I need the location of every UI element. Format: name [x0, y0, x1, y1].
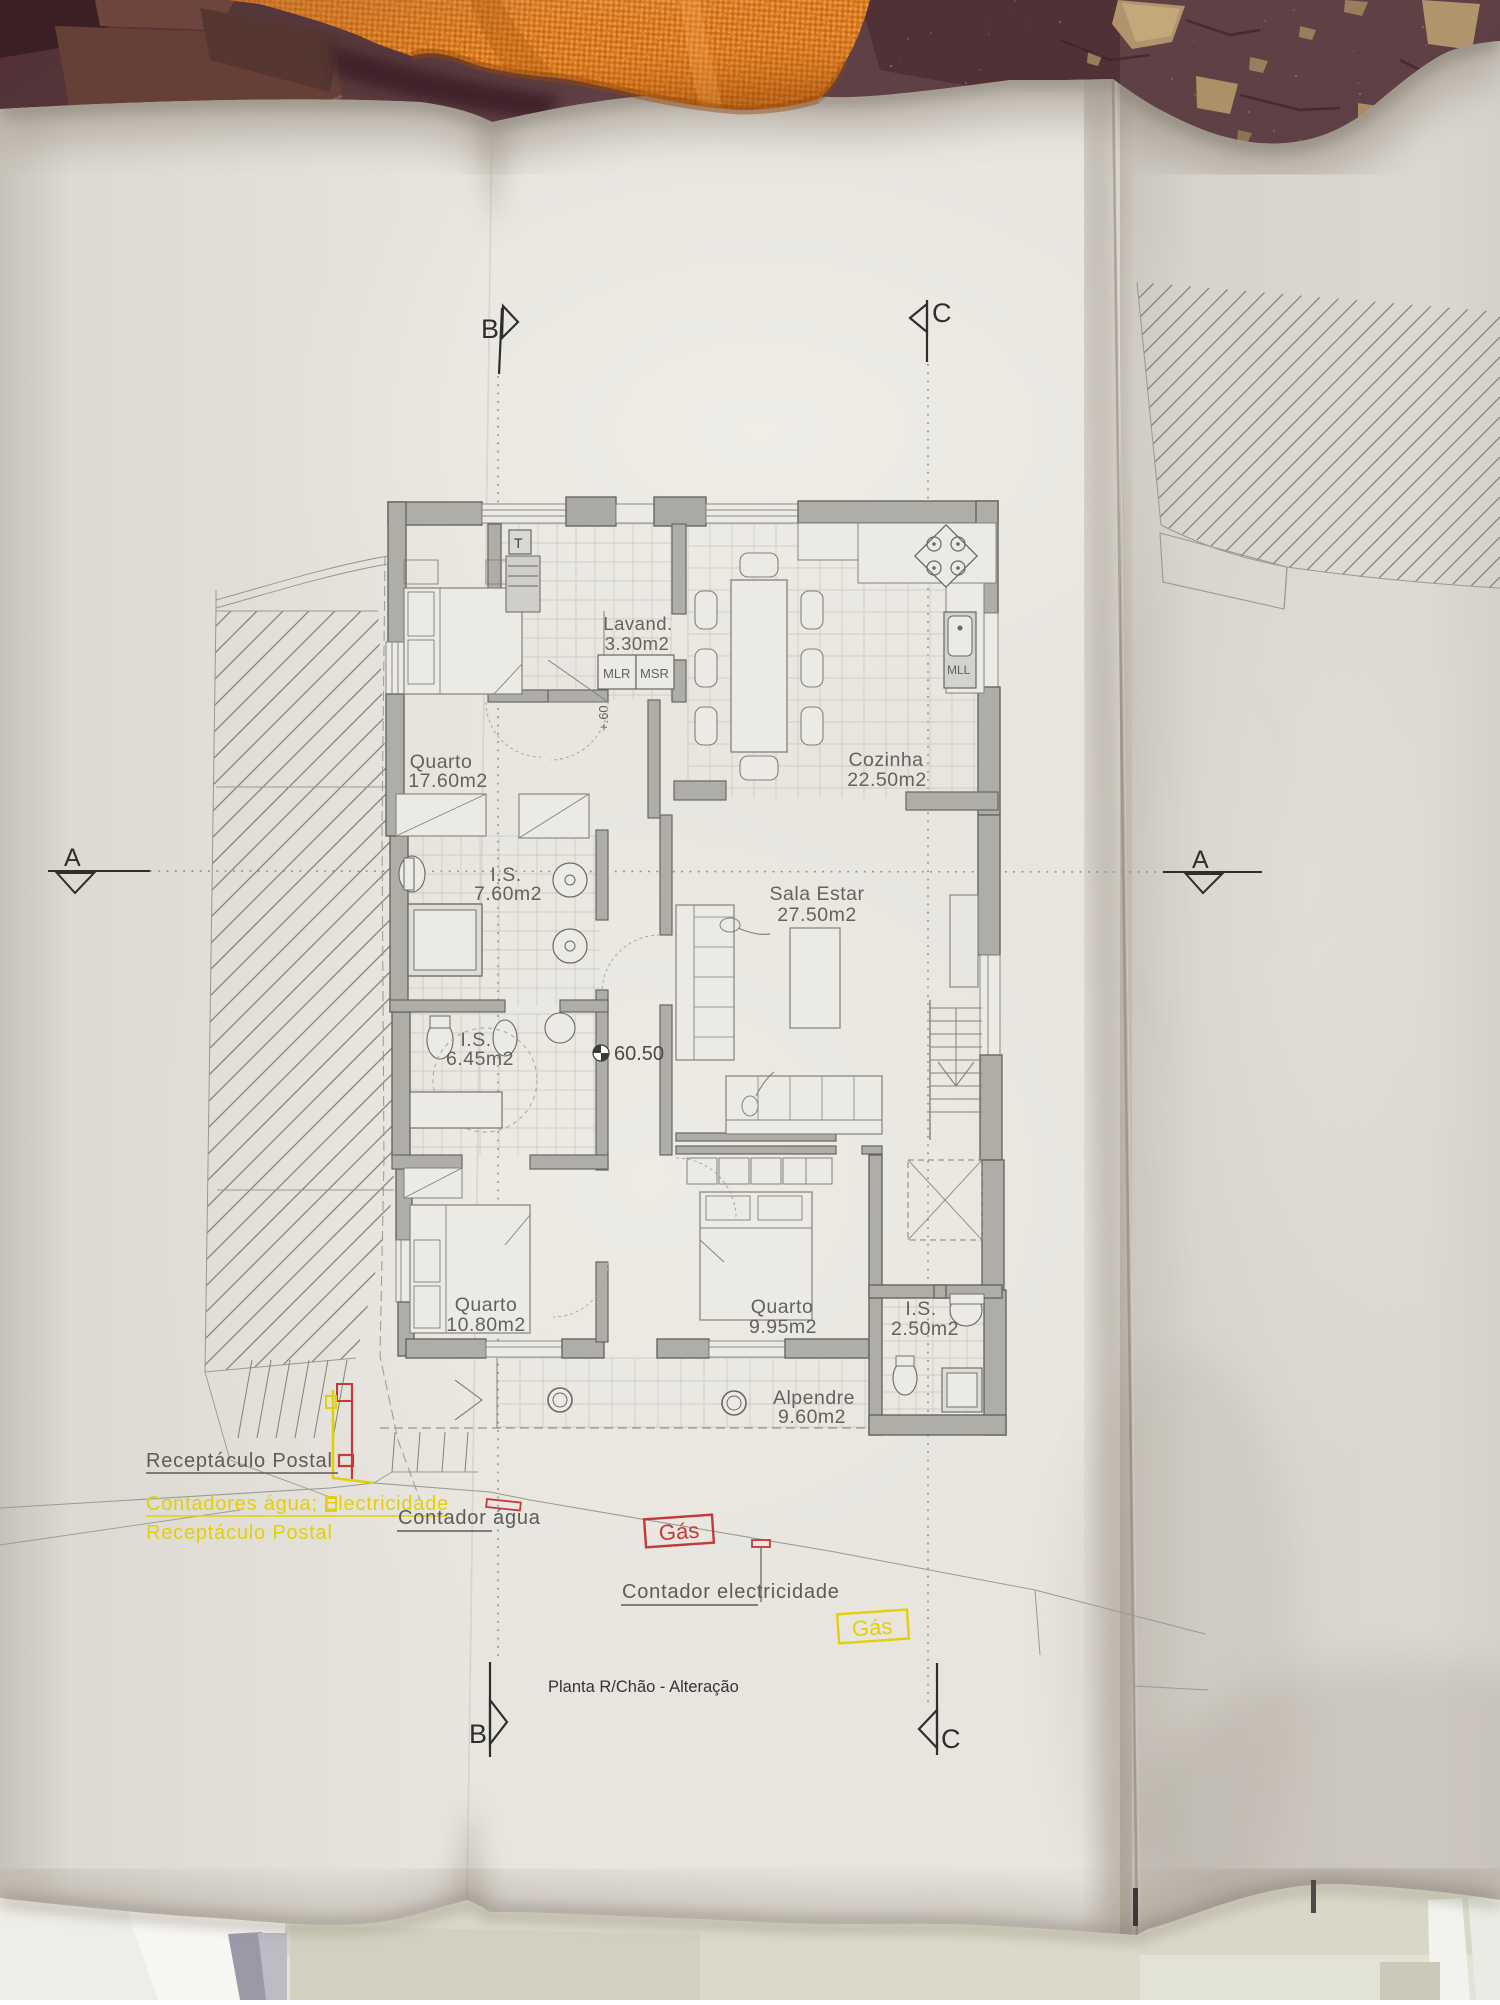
svg-text:A: A: [1192, 846, 1209, 874]
svg-text:Gás: Gás: [851, 1614, 893, 1642]
svg-text:Gás: Gás: [658, 1518, 700, 1546]
svg-text:Quarto: Quarto: [455, 1294, 518, 1316]
svg-text:B: B: [469, 1719, 487, 1749]
svg-text:+.60: +.60: [596, 705, 611, 731]
svg-text:Sala Estar: Sala Estar: [770, 883, 865, 905]
svg-text:Receptáculo Postal: Receptáculo Postal: [146, 1450, 333, 1472]
svg-text:Quarto: Quarto: [751, 1296, 814, 1318]
svg-text:3.30m2: 3.30m2: [605, 633, 670, 654]
svg-text:MLL: MLL: [947, 663, 971, 677]
svg-text:I.S.: I.S.: [905, 1298, 936, 1320]
svg-text:MLR: MLR: [603, 666, 630, 681]
svg-text:Lavand.: Lavand.: [603, 613, 672, 634]
svg-text:Receptáculo Postal: Receptáculo Postal: [146, 1522, 333, 1544]
svg-text:10.80m2: 10.80m2: [446, 1314, 525, 1336]
svg-text:6.45m2: 6.45m2: [446, 1048, 514, 1070]
svg-text:T: T: [514, 535, 523, 551]
svg-text:Contador electricidade: Contador electricidade: [622, 1581, 840, 1603]
svg-text:9.95m2: 9.95m2: [749, 1316, 817, 1338]
svg-text:2.50m2: 2.50m2: [891, 1318, 959, 1340]
svg-text:7.60m2: 7.60m2: [474, 883, 542, 905]
svg-text:A: A: [64, 844, 81, 872]
svg-text:Planta R/Chão - Alteração: Planta R/Chão - Alteração: [548, 1678, 739, 1696]
svg-text:Cozinha: Cozinha: [848, 749, 923, 771]
svg-text:C: C: [932, 298, 952, 328]
svg-text:9.60m2: 9.60m2: [778, 1406, 846, 1428]
svg-text:B: B: [481, 314, 499, 344]
svg-text:MSR: MSR: [640, 666, 669, 681]
svg-text:60.50: 60.50: [614, 1043, 664, 1065]
svg-text:17.60m2: 17.60m2: [408, 770, 487, 792]
svg-text:22.50m2: 22.50m2: [847, 769, 926, 791]
svg-text:Contador água: Contador água: [398, 1507, 541, 1529]
svg-text:27.50m2: 27.50m2: [777, 904, 856, 926]
svg-text:C: C: [941, 1724, 961, 1754]
